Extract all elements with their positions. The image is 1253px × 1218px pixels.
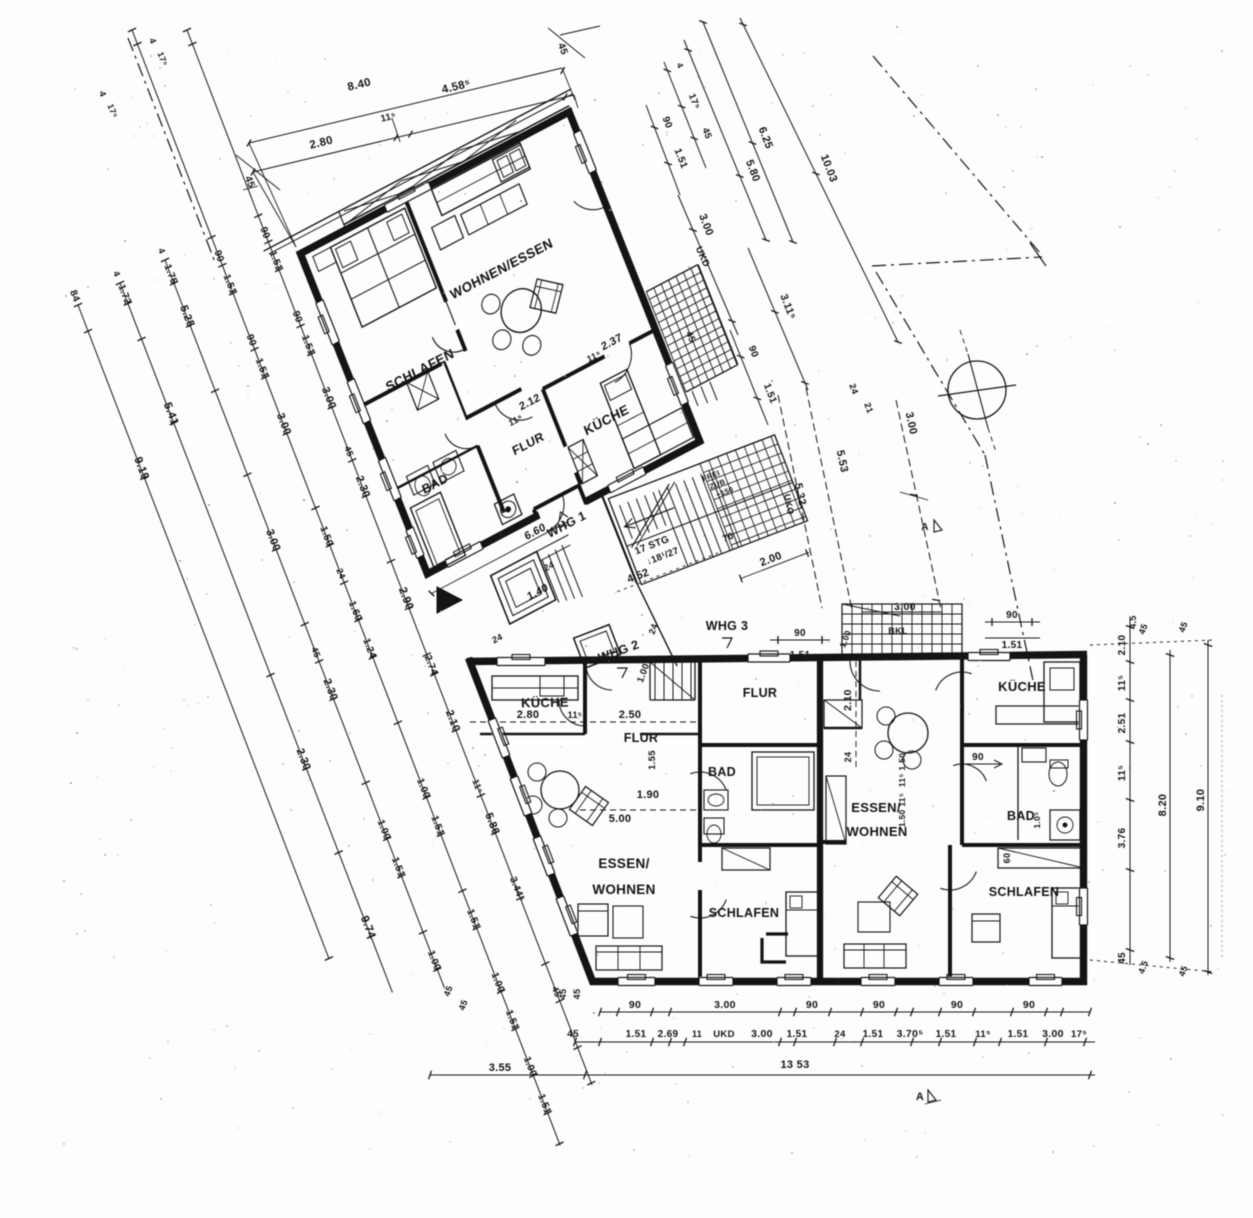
svg-text:1.51: 1.51 — [787, 1029, 808, 1040]
svg-text:5.00: 5.00 — [609, 813, 632, 825]
svg-text:BAD: BAD — [708, 765, 736, 779]
svg-text:90: 90 — [873, 999, 885, 1011]
svg-text:45: 45 — [567, 1029, 579, 1040]
svg-text:11⁵: 11⁵ — [1117, 675, 1128, 691]
svg-text:11⁵: 11⁵ — [975, 1029, 990, 1040]
svg-text:WOHNEN: WOHNEN — [592, 882, 655, 897]
svg-text:90: 90 — [794, 628, 806, 639]
svg-text:24: 24 — [843, 752, 853, 763]
svg-text:SCHLAFEN: SCHLAFEN — [989, 885, 1059, 899]
svg-text:ESSEN/: ESSEN/ — [598, 856, 649, 871]
svg-text:90: 90 — [629, 999, 641, 1011]
svg-text:2.50: 2.50 — [619, 709, 642, 721]
svg-text:8.20: 8.20 — [1157, 794, 1169, 817]
svg-text:11⁵: 11⁵ — [568, 710, 583, 720]
svg-text:9.10: 9.10 — [1195, 789, 1207, 812]
svg-text:SCHLAFEN: SCHLAFEN — [709, 906, 779, 920]
svg-text:90: 90 — [972, 752, 984, 763]
svg-text:11⁵ 1.50: 11⁵ 1.50 — [897, 753, 907, 787]
svg-text:2.10: 2.10 — [1117, 635, 1128, 656]
svg-text:WHG 3: WHG 3 — [706, 619, 748, 633]
svg-text:45: 45 — [1117, 952, 1128, 964]
svg-text:13 53: 13 53 — [780, 1059, 809, 1071]
svg-text:1.51: 1.51 — [790, 650, 811, 661]
svg-text:1.51: 1.51 — [863, 1029, 884, 1040]
svg-text:2.69: 2.69 — [658, 1029, 679, 1040]
svg-text:A: A — [921, 522, 929, 533]
svg-text:90: 90 — [1006, 610, 1018, 621]
svg-text:1.51: 1.51 — [1008, 1029, 1029, 1040]
svg-text:4.5: 4.5 — [1128, 615, 1138, 628]
svg-text:3.00: 3.00 — [1042, 1028, 1064, 1040]
svg-text:60: 60 — [1002, 853, 1012, 864]
svg-text:FLUR: FLUR — [743, 686, 778, 700]
svg-text:1.51: 1.51 — [626, 1029, 647, 1040]
svg-text:ESSEN/: ESSEN/ — [851, 800, 901, 815]
svg-text:UKD: UKD — [713, 1029, 734, 1040]
svg-text:3.00: 3.00 — [751, 1028, 773, 1040]
svg-text:1.55: 1.55 — [647, 750, 658, 770]
svg-text:1.90: 1.90 — [637, 789, 660, 801]
svg-text:A: A — [916, 1091, 924, 1103]
svg-text:2.51: 2.51 — [1117, 713, 1128, 734]
svg-text:1.51: 1.51 — [1002, 640, 1023, 651]
svg-text:FLUR: FLUR — [624, 731, 659, 745]
svg-text:BAD: BAD — [1007, 809, 1035, 823]
svg-text:45: 45 — [572, 989, 582, 1000]
svg-text:45: 45 — [558, 989, 568, 1000]
svg-text:3.55: 3.55 — [489, 1062, 512, 1074]
svg-text:1.51: 1.51 — [936, 1029, 957, 1040]
svg-text:17⁵: 17⁵ — [1071, 1029, 1087, 1040]
svg-text:90: 90 — [806, 999, 818, 1011]
svg-text:2.80: 2.80 — [517, 709, 540, 721]
svg-text:3.76: 3.76 — [1117, 828, 1128, 849]
svg-text:1.50 11⁵: 1.50 11⁵ — [897, 793, 907, 827]
svg-text:90: 90 — [951, 999, 963, 1011]
svg-text:BKL: BKL — [888, 626, 908, 636]
svg-text:11: 11 — [692, 1029, 702, 1039]
svg-text:24: 24 — [834, 1029, 846, 1040]
svg-text:3.00: 3.00 — [714, 999, 736, 1011]
svg-text:3.70⁵: 3.70⁵ — [897, 1028, 924, 1040]
svg-text:90: 90 — [1023, 999, 1035, 1011]
svg-text:2.10: 2.10 — [842, 689, 854, 711]
svg-text:3.00: 3.00 — [894, 601, 916, 613]
svg-text:11⁵: 11⁵ — [1117, 765, 1128, 781]
svg-text:KÜCHE: KÜCHE — [998, 679, 1046, 694]
